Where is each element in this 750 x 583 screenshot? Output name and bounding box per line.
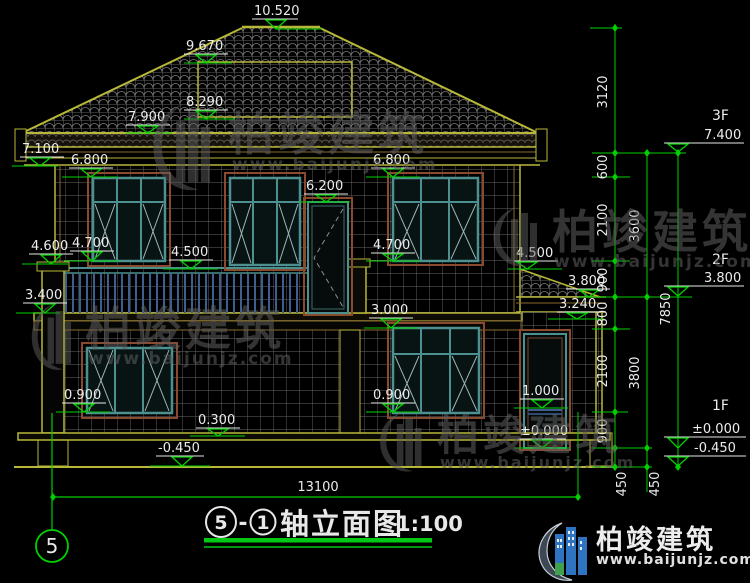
level-label: 8.290 bbox=[186, 95, 223, 110]
level-label: 10.520 bbox=[254, 4, 300, 19]
logo-green-accent bbox=[555, 563, 564, 575]
floor-labels: 3F 7.400 2F 3.800 1F ±0.000 -0.450 bbox=[664, 108, 746, 466]
title-axis-left: 5 bbox=[214, 512, 227, 534]
elevation-drawing: 10.520 9.670 8.290 7.900 7.100 bbox=[0, 0, 750, 583]
title-underline-thick bbox=[204, 538, 432, 543]
level-label: 7.100 bbox=[22, 142, 59, 157]
level-label: 6.200 bbox=[306, 179, 343, 194]
logo-building-bar bbox=[578, 537, 587, 575]
watermark-brand: 柏竣建筑 bbox=[228, 107, 428, 161]
title-axis-right: 1 bbox=[256, 512, 269, 534]
level-label: 3.400 bbox=[25, 288, 62, 303]
floor-2f-value: 3.800 bbox=[704, 271, 741, 286]
level-marker-10520: 10.520 bbox=[252, 4, 322, 29]
window-frame bbox=[230, 178, 300, 265]
floor-3f-value: 7.400 bbox=[704, 128, 741, 143]
chain-dim-7850: 7850 bbox=[659, 292, 674, 325]
level-label: 4.600 bbox=[31, 239, 68, 254]
chain-dim-600: 600 bbox=[596, 155, 611, 180]
watermark-brand: 柏竣建筑 bbox=[552, 205, 750, 259]
level-marker-neg0450: -0.450 bbox=[150, 441, 210, 466]
axis-number: 5 bbox=[46, 534, 59, 558]
floor-3f-label: 3F bbox=[712, 108, 729, 124]
title-scale: 1:100 bbox=[396, 512, 463, 536]
title-name: 轴立面图 bbox=[280, 507, 404, 541]
level-label: 3.240 bbox=[559, 297, 596, 312]
level-label: 7.900 bbox=[128, 110, 165, 125]
eave-end-right bbox=[536, 129, 547, 161]
level-label: 0.900 bbox=[64, 388, 101, 403]
marker-triangle bbox=[172, 457, 192, 466]
level-label: 6.800 bbox=[71, 153, 108, 168]
title-block: 5 - 1 轴立面图 1:100 bbox=[204, 507, 463, 547]
balcony-door bbox=[304, 198, 352, 315]
left-pilaster-cap bbox=[37, 262, 69, 271]
floor-ground-value: -0.450 bbox=[694, 441, 736, 456]
level-label: -0.450 bbox=[158, 441, 200, 456]
chain-dim-450-inner: 450 bbox=[615, 472, 630, 497]
chain-dim-2100-lower: 2100 bbox=[596, 354, 611, 387]
brand-logo-icon bbox=[539, 523, 587, 580]
level-label: 4.700 bbox=[72, 236, 109, 251]
level-label: 0.900 bbox=[373, 388, 410, 403]
watermark-url: www.baijunjz.com bbox=[440, 453, 635, 472]
floor-1f-value: ±0.000 bbox=[692, 422, 740, 437]
level-label: 9.670 bbox=[186, 39, 223, 54]
level-label: 0.300 bbox=[198, 413, 235, 428]
title-separator: - bbox=[238, 511, 247, 536]
watermark-url: www.baijunjz.com bbox=[554, 252, 750, 272]
floor-1f-label: 1F bbox=[712, 398, 729, 414]
watermark-url: www.baijunjz.com bbox=[232, 155, 438, 175]
grid-axis-bubble: 5 bbox=[36, 530, 68, 562]
level-label: 4.700 bbox=[373, 238, 410, 253]
level-label: 3.000 bbox=[371, 303, 408, 318]
brand-logo: 柏竣建筑 www.baijunjz.com bbox=[539, 523, 750, 580]
mid-pilaster bbox=[340, 330, 360, 433]
watermark-url: www.baijunjz.com bbox=[88, 349, 294, 369]
level-label: 1.000 bbox=[522, 384, 559, 399]
brand-logo-url: www.baijunjz.com bbox=[596, 552, 750, 568]
chain-dim-450-mid: 450 bbox=[648, 472, 663, 497]
chain-dim-800: 800 bbox=[596, 302, 611, 327]
total-width-label: 13100 bbox=[297, 480, 338, 495]
chain-dim-3800: 3800 bbox=[628, 356, 643, 389]
logo-building-bar bbox=[566, 527, 576, 575]
window-2f-mid bbox=[225, 173, 305, 270]
chain-dim-3120: 3120 bbox=[596, 75, 611, 108]
level-label: 4.500 bbox=[171, 245, 208, 260]
watermark-brand: 柏竣建筑 bbox=[85, 302, 285, 356]
